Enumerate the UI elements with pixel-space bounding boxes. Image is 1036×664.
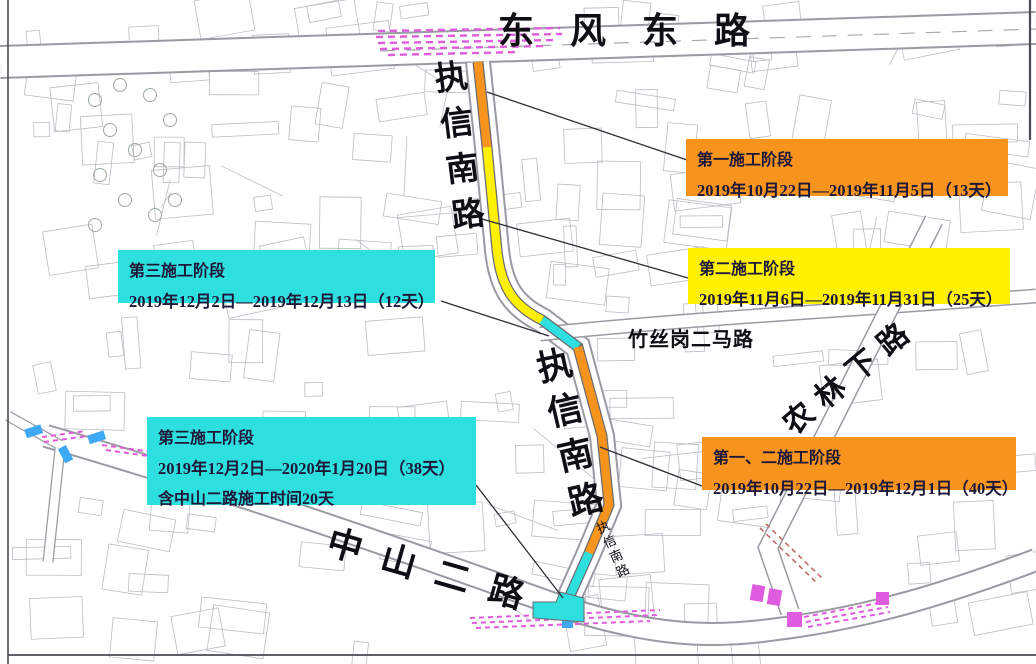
building-outline xyxy=(745,101,770,139)
building-outline xyxy=(365,317,425,356)
building-outline xyxy=(229,320,263,363)
building-outline xyxy=(34,122,50,137)
building-outline xyxy=(968,592,1033,636)
building-outline xyxy=(610,398,673,419)
building-outline xyxy=(94,141,114,184)
building-outline xyxy=(117,509,175,552)
building-outline xyxy=(953,500,995,550)
building-outline xyxy=(210,71,259,94)
building-outline xyxy=(254,195,273,211)
tree-symbol xyxy=(119,194,132,207)
building-outline xyxy=(376,92,427,121)
park-trees xyxy=(89,79,182,232)
phase3b-label: 第三施工阶段 2019年12月2日—2020年1月20日（38天） 含中山二路施… xyxy=(147,417,476,505)
alley-line xyxy=(161,193,171,208)
alley-line xyxy=(157,180,171,236)
building-outline xyxy=(908,562,931,584)
building-outline xyxy=(184,142,206,178)
construction-phases-map: 东风东路 执信南路 竹丝岗二马路 执信南路 执信南路 农林下路 中山二路 第一施… xyxy=(0,0,1036,664)
alley-line xyxy=(221,166,282,196)
building-outline xyxy=(305,382,323,396)
building-outline xyxy=(773,351,824,367)
building-outline xyxy=(207,605,270,659)
street-label-zhushigang-2nd-road: 竹丝岗二马路 xyxy=(628,330,754,350)
building-outline xyxy=(73,396,110,412)
building-outline xyxy=(383,193,441,224)
building-outline xyxy=(30,597,84,640)
building-outline xyxy=(212,121,279,137)
phase1-2-name: 第一、二施工阶段 xyxy=(713,444,1005,468)
building-outline xyxy=(319,197,361,249)
tree-symbol xyxy=(169,194,182,207)
building-outline xyxy=(122,317,141,369)
tree-symbol xyxy=(94,169,107,182)
phase3b-dates: 2019年12月2日—2020年1月20日（38天） xyxy=(158,455,465,479)
phase2-label: 第二施工阶段 2019年11月6日—2019年11月31日（25天） xyxy=(688,248,1010,304)
phase3b-name: 第三施工阶段 xyxy=(158,424,465,448)
building-outline xyxy=(645,510,700,536)
building-outline xyxy=(554,265,566,285)
building-outline xyxy=(999,90,1026,106)
building-outline xyxy=(78,497,103,515)
tree-symbol xyxy=(164,114,177,127)
building-outline xyxy=(199,597,267,634)
building-outline xyxy=(916,341,958,369)
building-outline xyxy=(917,101,947,143)
building-outline xyxy=(43,224,99,275)
building-outline xyxy=(599,193,644,247)
phase2-dates: 2019年11月6日—2019年11月31日（25天） xyxy=(699,286,999,310)
building-outline xyxy=(597,161,641,210)
phase3a-label: 第三施工阶段 2019年12月2日—2019年12月13日（12天） xyxy=(118,250,435,303)
phase1-2-label: 第一、二施工阶段 2019年10月22日—2019年12月1日（40天） xyxy=(702,437,1016,490)
phase1-dates: 2019年10月22日—2019年11月5日（13天） xyxy=(697,177,997,201)
building-outline xyxy=(680,216,722,228)
building-outline xyxy=(400,2,429,18)
street-label-dongfeng-east-road: 东风东路 xyxy=(498,13,786,49)
building-outline xyxy=(373,2,393,32)
building-outline xyxy=(55,104,72,132)
building-outline xyxy=(128,574,168,593)
phase2-name: 第二施工阶段 xyxy=(699,255,999,279)
phase3a-name: 第三施工阶段 xyxy=(129,257,424,281)
building-outline xyxy=(12,546,71,559)
building-outline xyxy=(606,296,629,313)
building-outline xyxy=(106,331,124,357)
building-outline xyxy=(556,184,580,221)
building-outline xyxy=(351,641,368,664)
building-outline xyxy=(733,506,769,522)
building-outline xyxy=(495,391,513,412)
building-outline xyxy=(194,0,255,40)
phase3a-dates: 2019年12月2日—2019年12月13日（12天） xyxy=(129,288,424,312)
building-outline xyxy=(615,90,675,111)
building-outline xyxy=(546,261,609,305)
phase3b-note: 含中山二路施工时间20天 xyxy=(158,485,465,509)
building-outline xyxy=(171,608,225,655)
building-outline xyxy=(516,445,545,473)
building-outline xyxy=(163,142,180,183)
building-outline xyxy=(428,502,486,554)
building-outline xyxy=(186,514,216,532)
building-outline xyxy=(189,352,232,382)
building-outline xyxy=(564,128,603,163)
phase1-2-dates: 2019年10月22日—2019年12月1日（40天） xyxy=(713,475,1005,499)
tree-symbol xyxy=(114,79,127,92)
building-outline xyxy=(593,250,639,277)
building-outline xyxy=(707,65,741,93)
building-outline xyxy=(618,448,670,491)
building-outline xyxy=(33,362,56,394)
building-outline xyxy=(959,330,988,375)
building-outline xyxy=(80,114,134,165)
phase1-label: 第一施工阶段 2019年10月22日—2019年11月5日（13天） xyxy=(686,139,1008,196)
phase1-name: 第一施工阶段 xyxy=(697,146,997,170)
tree-symbol xyxy=(144,89,157,102)
alley-line xyxy=(642,451,706,458)
building-outline xyxy=(244,330,280,382)
tree-symbol xyxy=(89,219,102,232)
building-outline xyxy=(710,54,757,74)
alley-line xyxy=(404,136,407,195)
building-outline xyxy=(917,532,959,566)
building-outline xyxy=(352,133,392,162)
tree-symbol xyxy=(104,124,117,137)
building-outline xyxy=(522,158,541,201)
building-outline xyxy=(102,544,149,595)
